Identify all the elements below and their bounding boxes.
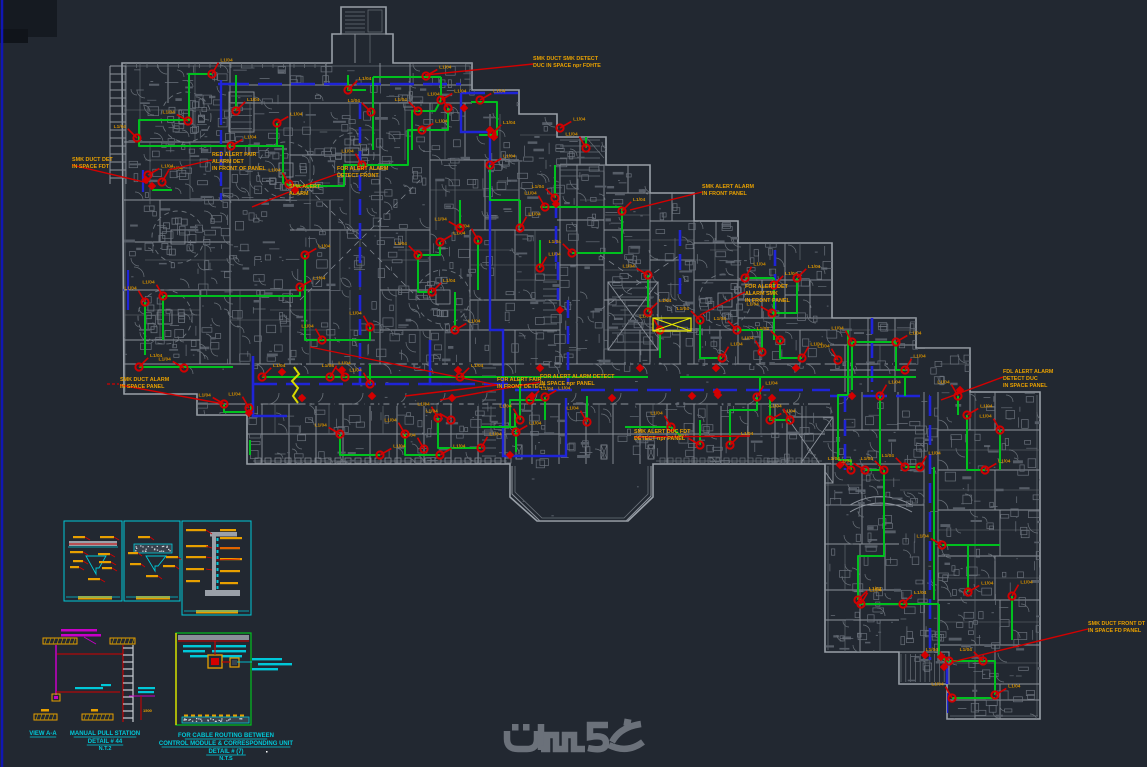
svg-text:L1/04: L1/04 [914,590,927,596]
svg-text:SMK DUCT FRONT DT: SMK DUCT FRONT DT [1088,621,1146,627]
svg-text:IN SPACE FDT: IN SPACE FDT [72,164,110,170]
svg-text:L1/04: L1/04 [142,280,155,286]
svg-text:SMK DUCT SMK DETECT: SMK DUCT SMK DETECT [533,56,599,62]
svg-text:L1/04: L1/04 [659,298,672,304]
svg-text:L1/04: L1/04 [395,241,408,247]
svg-text:IN FRONT OF PANEL: IN FRONT OF PANEL [212,166,267,172]
svg-text:L1/04: L1/04 [393,444,406,450]
svg-text:DETAIL # (7): DETAIL # (7) [208,749,243,755]
svg-text:L1/04: L1/04 [524,191,537,197]
svg-text:L1/04: L1/04 [435,119,448,125]
svg-text:L1/04: L1/04 [439,65,452,71]
svg-text:ALARM SMK: ALARM SMK [745,291,778,297]
svg-text:L1/04: L1/04 [714,316,727,322]
svg-text:L1/04: L1/04 [435,217,448,223]
svg-text:L1/04: L1/04 [741,336,754,342]
svg-text:L1/04: L1/04 [290,112,303,118]
svg-text:L1/04: L1/04 [980,404,993,410]
svg-text:L1/04: L1/04 [313,276,326,282]
svg-text:L1/04: L1/04 [322,363,335,369]
svg-text:L1/04: L1/04 [114,124,127,130]
svg-text:L1/04: L1/04 [163,110,176,116]
svg-text:L1/04: L1/04 [633,197,646,203]
svg-text:MANUAL PULL STATION: MANUAL PULL STATION [70,731,140,737]
svg-text:L1/04: L1/04 [931,682,944,688]
svg-text:L1/04: L1/04 [454,89,467,95]
svg-text:L1/04: L1/04 [359,76,372,82]
svg-text:L1/04: L1/04 [928,451,941,457]
svg-text:L1/04: L1/04 [489,432,502,438]
svg-text:IN SPACE PANEL: IN SPACE PANEL [120,384,165,390]
svg-text:DETECT npr PANEL: DETECT npr PANEL [634,436,686,442]
svg-text:DUC IN SPACE npr FDHTE: DUC IN SPACE npr FDHTE [533,63,601,69]
svg-text:L1/04: L1/04 [453,444,466,450]
svg-text:L1/04: L1/04 [549,239,562,245]
svg-text:L1/04: L1/04 [384,418,397,424]
svg-text:L1/04: L1/04 [268,168,281,174]
svg-text:L1/04: L1/04 [348,98,361,104]
svg-text:L1/04: L1/04 [417,402,430,408]
svg-text:L1/04: L1/04 [917,534,930,540]
svg-text:L1/04: L1/04 [730,342,743,348]
svg-text:L1/04: L1/04 [301,324,314,330]
svg-text:L1/04: L1/04 [828,456,841,462]
svg-text:L1/04: L1/04 [1020,580,1033,586]
svg-text:L1/04: L1/04 [338,361,351,367]
svg-text:N.T.S: N.T.S [219,756,233,762]
svg-text:L1/04: L1/04 [979,414,992,420]
svg-text:SMK DUCT DET: SMK DUCT DET [72,157,113,163]
svg-text:FOR CABLE ROUTING BETWEEN: FOR CABLE ROUTING BETWEEN [178,733,274,739]
svg-text:L1/04: L1/04 [937,380,950,386]
svg-text:DETECT DUC: DETECT DUC [1003,376,1038,382]
svg-text:IN FRONT PANEL: IN FRONT PANEL [745,298,791,304]
svg-text:L1/04: L1/04 [757,326,770,332]
svg-text:L1/04: L1/04 [220,58,233,64]
svg-text:L1/04: L1/04 [499,404,512,410]
svg-text:SMK ALERT DUC FDT: SMK ALERT DUC FDT [634,429,691,435]
svg-text:SMK ALERT ALARM: SMK ALERT ALARM [702,184,755,190]
svg-text:IN SPACE FD PANEL: IN SPACE FD PANEL [1088,628,1142,634]
svg-text:L1/04: L1/04 [529,421,542,427]
svg-text:FOR ALERT DET: FOR ALERT DET [745,284,789,290]
svg-text:IN FRONT PANEL: IN FRONT PANEL [702,191,748,197]
svg-text:L1/04: L1/04 [769,404,782,410]
svg-text:L1/04: L1/04 [566,406,579,412]
svg-text:L1/04: L1/04 [765,381,778,387]
svg-text:L1/04: L1/04 [548,252,561,258]
svg-text:L1/04: L1/04 [532,184,545,190]
svg-text:CONTROL MODULE & CORRESPONDING: CONTROL MODULE & CORRESPONDING UNIT [159,741,294,747]
svg-text:L1/04: L1/04 [882,453,895,459]
svg-text:L1/04: L1/04 [443,278,456,284]
svg-text:RED ALERT FAIR: RED ALERT FAIR [212,152,257,158]
svg-text:L1/04: L1/04 [395,97,408,103]
svg-text:DETAIL # 44: DETAIL # 44 [88,739,123,745]
svg-text:L1/04: L1/04 [426,409,439,415]
svg-text:L1/04: L1/04 [318,244,331,250]
svg-text:L1/04: L1/04 [493,89,506,95]
svg-text:L1/04: L1/04 [753,262,766,268]
svg-text:L1/04: L1/04 [199,393,212,399]
svg-text:L1/04: L1/04 [503,154,516,160]
svg-text:DETECT FRONT: DETECT FRONT [337,173,379,179]
svg-text:L1/04: L1/04 [528,212,541,218]
svg-text:L1/04: L1/04 [471,363,484,369]
svg-text:L1/04: L1/04 [341,149,354,155]
svg-text:L1/04: L1/04 [808,264,821,270]
svg-text:L1/04: L1/04 [228,392,241,398]
svg-text:L1/04: L1/04 [565,132,578,138]
svg-text:L1/04: L1/04 [273,363,286,369]
svg-text:L1/04: L1/04 [503,120,516,126]
svg-text:ALARM DET: ALARM DET [212,159,244,165]
svg-text:L1/04: L1/04 [124,286,137,292]
svg-text:ALARM: ALARM [289,191,309,197]
svg-text:L1/04: L1/04 [909,331,922,337]
svg-text:L1/04: L1/04 [247,97,260,103]
svg-text:L1/04: L1/04 [468,319,481,325]
svg-text:L1/04: L1/04 [869,588,882,594]
svg-text:N.T.2: N.T.2 [99,746,112,752]
svg-text:L1/04: L1/04 [573,117,586,123]
svg-text:FDL ALERT ALARM: FDL ALERT ALARM [1003,369,1054,375]
svg-text:IN FRONT DETECT: IN FRONT DETECT [497,384,546,390]
svg-text:L1/04: L1/04 [981,581,994,587]
svg-text:L1/04: L1/04 [888,380,901,386]
svg-text:L1/04: L1/04 [960,647,973,653]
svg-text:IN SPACE npr PANEL: IN SPACE npr PANEL [540,381,595,387]
svg-text:L1/04: L1/04 [998,459,1011,465]
svg-text:L1/04: L1/04 [349,368,362,374]
svg-text:1500: 1500 [143,708,153,713]
svg-text:L1/04: L1/04 [623,264,636,270]
svg-text:L1/04: L1/04 [244,135,257,141]
svg-text:FOR ALERT ALARM: FOR ALERT ALARM [337,166,389,172]
svg-text:L1/04: L1/04 [913,354,926,360]
svg-text:L1/04: L1/04 [159,357,172,363]
svg-text:L1/04: L1/04 [349,311,362,317]
svg-text:FOR ALERT ALARM DETECT: FOR ALERT ALARM DETECT [540,374,615,380]
svg-text:FOR ALERT FAIR: FOR ALERT FAIR [497,377,542,383]
svg-text:L1/04: L1/04 [817,344,830,350]
svg-text:VIEW A-A: VIEW A-A [29,731,57,737]
svg-text:L1/04: L1/04 [861,456,874,462]
svg-text:L1/04: L1/04 [831,326,844,332]
svg-text:IN SPACE PANEL: IN SPACE PANEL [1003,383,1048,389]
svg-text:L1/04: L1/04 [926,647,939,653]
svg-text:L1/04: L1/04 [677,306,690,312]
svg-text:SMK DUCT ALARM: SMK DUCT ALARM [120,377,170,383]
svg-text:L1/04: L1/04 [650,411,663,417]
svg-text:L1/04: L1/04 [315,423,328,429]
svg-text:L1/04: L1/04 [1008,684,1021,690]
